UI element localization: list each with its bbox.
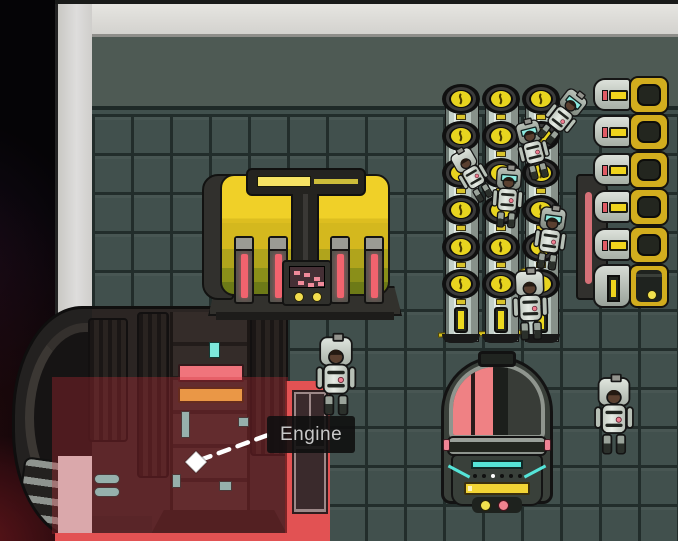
astronaut[interactable] bbox=[489, 166, 526, 231]
astronaut-leg bbox=[532, 321, 542, 340]
suit-pink-badge bbox=[535, 149, 541, 155]
astronaut-leg bbox=[536, 252, 547, 270]
astronaut-leg bbox=[338, 394, 349, 415]
astronaut-suit bbox=[518, 294, 542, 322]
astronaut[interactable] bbox=[315, 336, 357, 417]
suit-pink-badge bbox=[509, 198, 514, 203]
astronaut-arm bbox=[626, 406, 634, 428]
suit-pink-badge bbox=[551, 239, 557, 245]
astronaut[interactable] bbox=[529, 205, 571, 273]
astronaut-head bbox=[606, 390, 621, 405]
astronaut-suit bbox=[323, 364, 349, 395]
astronaut-leg bbox=[528, 164, 540, 181]
astronaut-leg bbox=[602, 434, 612, 455]
astronaut-suit bbox=[601, 404, 627, 434]
engine-tooltip: Engine bbox=[267, 416, 355, 453]
suit-pink-badge bbox=[474, 173, 480, 179]
astronaut-suit bbox=[496, 187, 518, 212]
astronaut-leg bbox=[538, 161, 550, 178]
astronaut-leg bbox=[616, 434, 626, 455]
astronaut-leg bbox=[547, 253, 558, 271]
suit-pink-badge bbox=[616, 417, 622, 423]
astronaut-leg bbox=[496, 211, 505, 228]
astronaut-leg bbox=[507, 212, 516, 229]
suit-pink-badge bbox=[338, 377, 344, 383]
suit-pink-badge bbox=[559, 118, 565, 124]
astronaut[interactable] bbox=[593, 377, 634, 456]
engine-tooltip-label: Engine bbox=[280, 424, 342, 446]
crew-layer bbox=[0, 0, 678, 541]
game-scene: Engine bbox=[0, 0, 678, 541]
astronaut-leg bbox=[324, 394, 335, 415]
suit-pink-badge bbox=[532, 306, 538, 312]
astronaut-head bbox=[328, 350, 344, 365]
astronaut-arm bbox=[348, 366, 356, 389]
astronaut-leg bbox=[520, 322, 530, 341]
astronaut-suit bbox=[538, 227, 562, 254]
astronaut[interactable] bbox=[510, 269, 550, 342]
